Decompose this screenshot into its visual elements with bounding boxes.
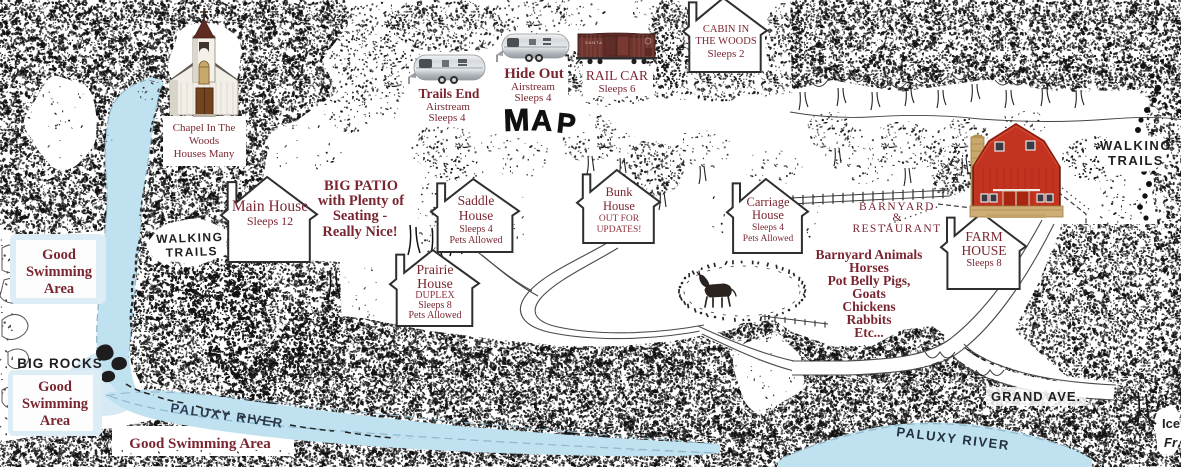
svg-text:TRAILS: TRAILS [1108,153,1164,168]
svg-text:Bunk: Bunk [605,185,633,199]
svg-text:Woods: Woods [189,135,219,147]
svg-text:UPDATES!: UPDATES! [597,225,642,235]
svg-text:Pets Allowed: Pets Allowed [408,310,461,321]
svg-text:Trails End: Trails End [419,86,480,101]
svg-text:S A N T A: S A N T A [585,40,602,45]
svg-text:OUT FOR: OUT FOR [599,214,640,224]
svg-text:A: A [531,105,553,138]
svg-text:Pets Allowed: Pets Allowed [743,234,794,244]
svg-text:M: M [503,102,530,138]
svg-text:House: House [459,208,494,223]
svg-text:Sleeps 6: Sleeps 6 [599,83,636,95]
svg-text:with Plenty of: with Plenty of [318,193,404,209]
svg-text:Ice: Ice [1162,416,1180,431]
svg-text:Good: Good [42,247,76,263]
svg-text:Sleeps 12: Sleeps 12 [247,214,293,228]
svg-text:Area: Area [44,281,75,297]
svg-text:Prairie: Prairie [416,263,453,278]
svg-text:Seating -: Seating - [333,208,388,224]
svg-text:FARM: FARM [965,229,1002,244]
svg-text:WALKING: WALKING [1100,138,1172,153]
svg-text:THE WOODS: THE WOODS [695,36,757,47]
svg-text:Pets Allowed: Pets Allowed [449,235,502,246]
svg-text:CABIN IN: CABIN IN [703,24,750,35]
svg-text:Sleeps 8: Sleeps 8 [966,258,1001,269]
svg-text:RESTAURANT: RESTAURANT [852,223,941,235]
svg-text:Really Nice!: Really Nice! [322,224,397,240]
svg-text:Sleeps 4: Sleeps 4 [752,223,784,233]
svg-text:Swimming: Swimming [22,396,89,412]
svg-text:Good Swimming Area: Good Swimming Area [129,436,271,452]
svg-text:RAIL CAR: RAIL CAR [586,68,648,83]
svg-text:HOUSE: HOUSE [961,243,1006,258]
svg-text:Saddle: Saddle [458,193,495,208]
svg-text:Etc...: Etc... [854,325,884,340]
svg-text:BIG ROCKS: BIG ROCKS [17,356,103,371]
svg-text:TRAILS: TRAILS [165,244,218,260]
svg-text:House: House [603,199,635,213]
svg-text:BIG PATIO: BIG PATIO [324,178,398,194]
svg-text:Houses Many: Houses Many [174,148,235,160]
svg-text:Hide Out: Hide Out [504,66,564,82]
svg-text:Sleeps 4: Sleeps 4 [459,224,493,235]
svg-text:Carriage: Carriage [746,195,789,209]
svg-text:Good: Good [38,379,72,395]
svg-text:GRAND AVE.: GRAND AVE. [991,389,1081,404]
svg-text:P: P [555,107,577,140]
svg-text:Sleeps 4: Sleeps 4 [429,112,466,124]
svg-text:House: House [752,208,784,222]
svg-text:Sleeps 2: Sleeps 2 [708,48,745,60]
svg-text:Chapel In The: Chapel In The [173,122,236,134]
svg-text:Area: Area [40,413,71,429]
svg-text:Fr: Fr [1164,435,1178,450]
svg-text:Swimming: Swimming [26,264,93,280]
svg-text:Main House: Main House [232,198,308,215]
